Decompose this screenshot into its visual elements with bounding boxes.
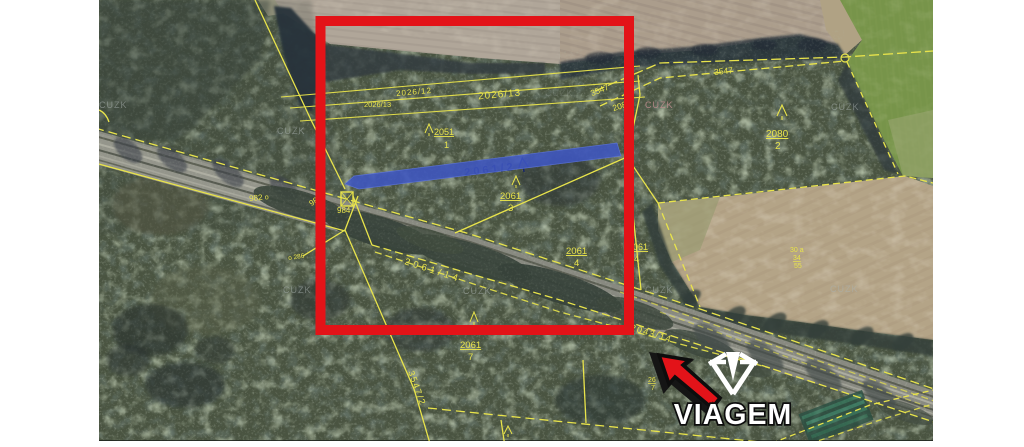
svg-text:55: 55 [794, 263, 802, 270]
svg-text:CUZK: CUZK [99, 100, 128, 110]
svg-text:CUZK: CUZK [283, 285, 312, 295]
svg-text:4: 4 [574, 258, 579, 269]
svg-text:3: 3 [508, 203, 513, 214]
svg-text:7: 7 [468, 352, 473, 363]
svg-text:26: 26 [648, 377, 656, 384]
svg-text:VIAGEM: VIAGEM [674, 399, 792, 431]
svg-text:CUZK: CUZK [645, 285, 674, 295]
svg-text:CUZK: CUZK [645, 100, 674, 110]
svg-text:4: 4 [634, 254, 639, 264]
svg-text:CUZK: CUZK [545, 88, 574, 98]
svg-text:2: 2 [775, 141, 781, 152]
svg-text:CUZK: CUZK [830, 284, 859, 294]
svg-text:984: 984 [337, 206, 351, 215]
svg-text:2061: 2061 [566, 246, 587, 257]
svg-text:CUZK: CUZK [463, 286, 492, 296]
svg-text:7: 7 [651, 385, 655, 392]
svg-text:2061: 2061 [500, 191, 521, 202]
svg-text:2080: 2080 [766, 129, 789, 140]
svg-text:2026/13: 2026/13 [364, 100, 391, 109]
svg-text:CUZK: CUZK [277, 126, 306, 136]
svg-text:CUZK: CUZK [831, 102, 860, 112]
svg-text:34: 34 [793, 255, 801, 262]
svg-text:30 a: 30 a [790, 247, 804, 254]
svg-text:3547: 3547 [714, 65, 734, 77]
svg-text:2061: 2061 [460, 340, 481, 351]
svg-text:1: 1 [444, 140, 449, 150]
svg-text:2051: 2051 [434, 127, 454, 137]
